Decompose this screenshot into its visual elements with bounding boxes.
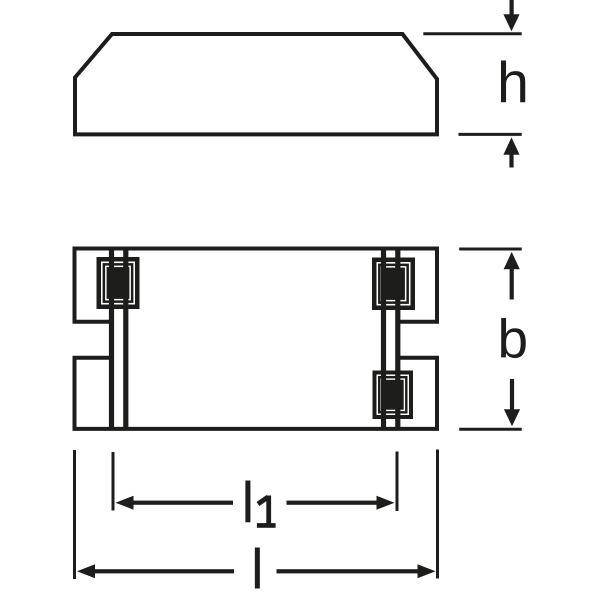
svg-text:h: h	[497, 51, 529, 115]
svg-text:b: b	[498, 308, 529, 370]
svg-text:l: l	[242, 471, 255, 535]
svg-text:l: l	[251, 538, 264, 600]
